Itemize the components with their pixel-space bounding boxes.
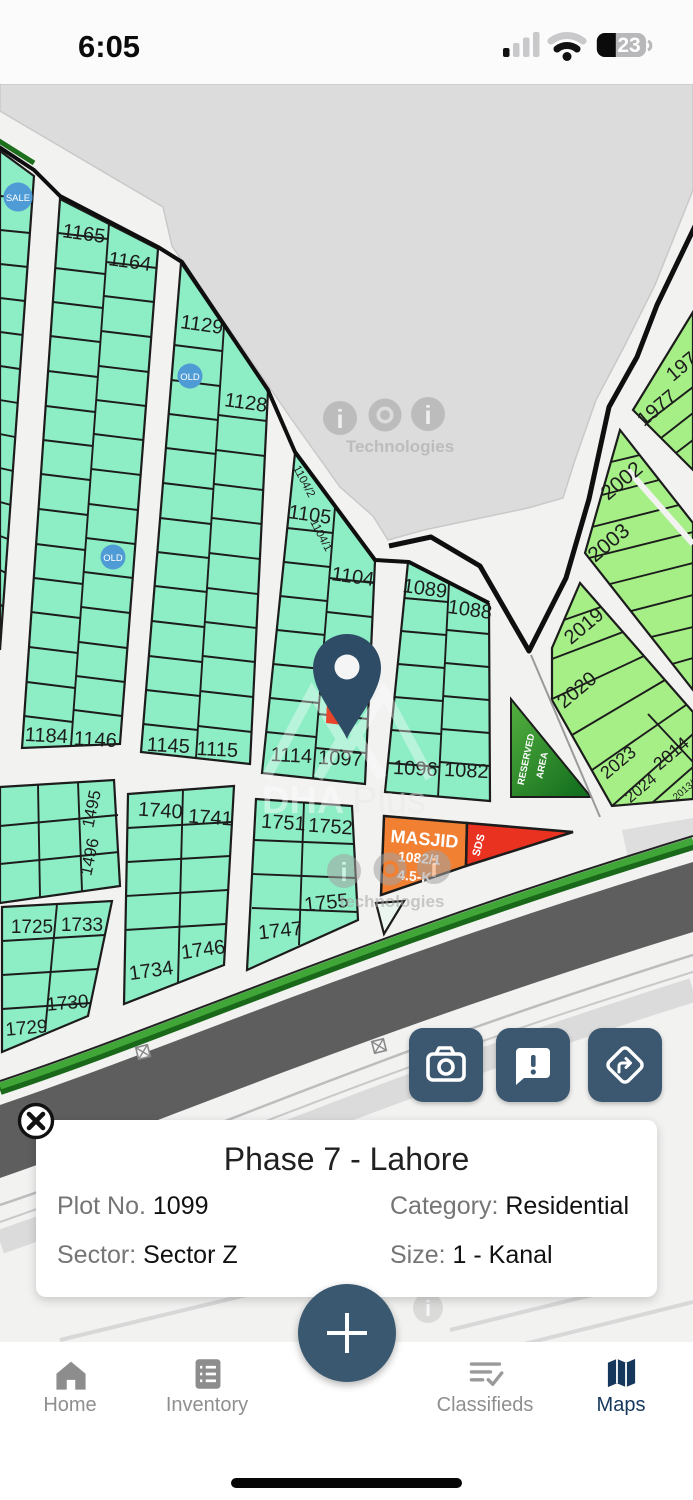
svg-text:1730: 1730 (46, 991, 90, 1016)
svg-text:1740: 1740 (137, 798, 183, 823)
svg-text:1729: 1729 (5, 1016, 49, 1041)
svg-text:i: i (336, 404, 343, 434)
svg-text:1145: 1145 (146, 734, 190, 758)
svg-text:1184: 1184 (24, 724, 68, 748)
svg-text:1115: 1115 (196, 738, 239, 762)
svg-text:i: i (340, 857, 347, 887)
svg-text:Plus: Plus (352, 780, 426, 822)
svg-text:23: 23 (617, 34, 640, 57)
svg-text:OLD: OLD (103, 553, 123, 564)
svg-text:Technologies: Technologies (346, 437, 454, 456)
svg-text:1741: 1741 (187, 805, 233, 830)
svg-text:SALE: SALE (6, 193, 30, 204)
svg-text:OLD: OLD (180, 372, 200, 383)
svg-text:i: i (430, 853, 437, 883)
svg-text:i: i (424, 400, 431, 430)
svg-text:1146: 1146 (73, 728, 117, 752)
svg-text:technologies: technologies (340, 892, 445, 911)
svg-text:DHA: DHA (262, 780, 344, 822)
svg-text:1733: 1733 (61, 915, 103, 936)
svg-text:1747: 1747 (257, 918, 304, 945)
svg-text:i: i (425, 1296, 431, 1321)
svg-text:1725: 1725 (11, 917, 53, 938)
svg-text:1082: 1082 (444, 759, 490, 783)
